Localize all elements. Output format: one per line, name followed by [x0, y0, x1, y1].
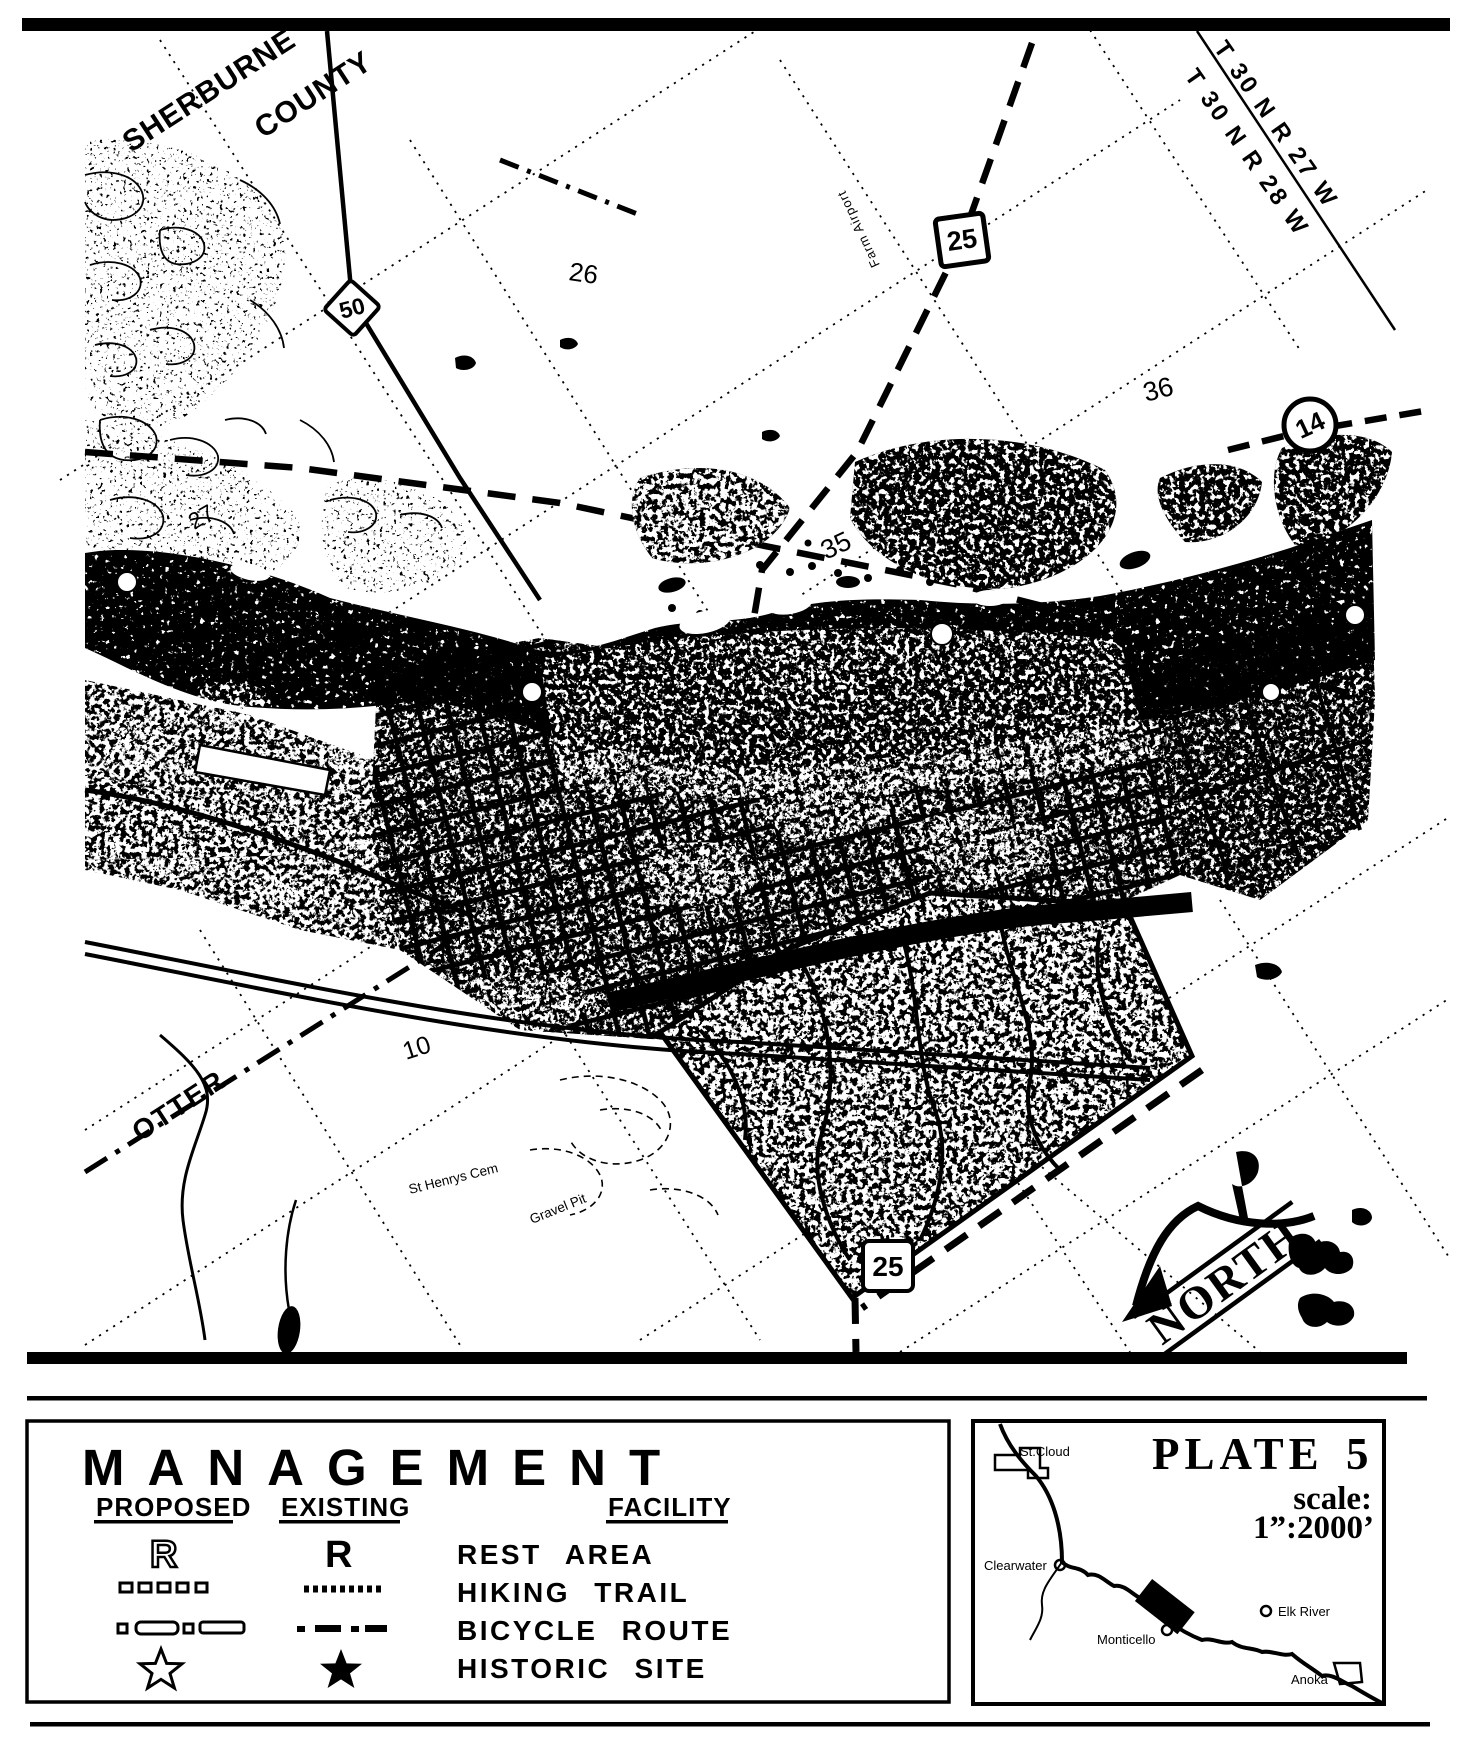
svg-text:Elk River: Elk River: [1278, 1604, 1331, 1619]
svg-text:R: R: [150, 1534, 177, 1576]
svg-text:Monticello: Monticello: [1097, 1632, 1156, 1647]
svg-text:Anoka: Anoka: [1291, 1672, 1329, 1687]
svg-text:25: 25: [872, 1251, 903, 1282]
svg-text:MANAGEMENT: MANAGEMENT: [82, 1439, 683, 1496]
svg-text:R: R: [325, 1534, 352, 1576]
svg-text:BICYCLE ROUTE: BICYCLE ROUTE: [457, 1615, 732, 1646]
svg-text:26: 26: [567, 256, 600, 290]
svg-text:36: 36: [1140, 371, 1177, 408]
svg-text:5: 5: [1346, 1429, 1369, 1479]
svg-text:PLATE: PLATE: [1152, 1429, 1324, 1479]
svg-text:St.Cloud: St.Cloud: [1020, 1444, 1070, 1459]
svg-text:Clearwater: Clearwater: [984, 1558, 1048, 1573]
svg-text:Farm Airport: Farm Airport: [834, 188, 883, 270]
svg-text:FACILITY: FACILITY: [608, 1492, 732, 1522]
svg-text:1”:2000’: 1”:2000’: [1253, 1510, 1374, 1546]
svg-text:Gravel Pit: Gravel Pit: [528, 1191, 589, 1227]
svg-text:25: 25: [945, 223, 979, 257]
svg-text:REST AREA: REST AREA: [457, 1539, 654, 1570]
svg-text:St Henrys Cem: St Henrys Cem: [407, 1160, 499, 1197]
svg-text:OTTER: OTTER: [126, 1064, 231, 1147]
svg-text:HIKING TRAIL: HIKING TRAIL: [457, 1577, 689, 1608]
svg-text:PROPOSED: PROPOSED: [96, 1492, 251, 1522]
svg-text:EXISTING: EXISTING: [281, 1492, 410, 1522]
svg-text:HISTORIC SITE: HISTORIC SITE: [457, 1653, 707, 1684]
svg-text:10: 10: [399, 1030, 434, 1065]
